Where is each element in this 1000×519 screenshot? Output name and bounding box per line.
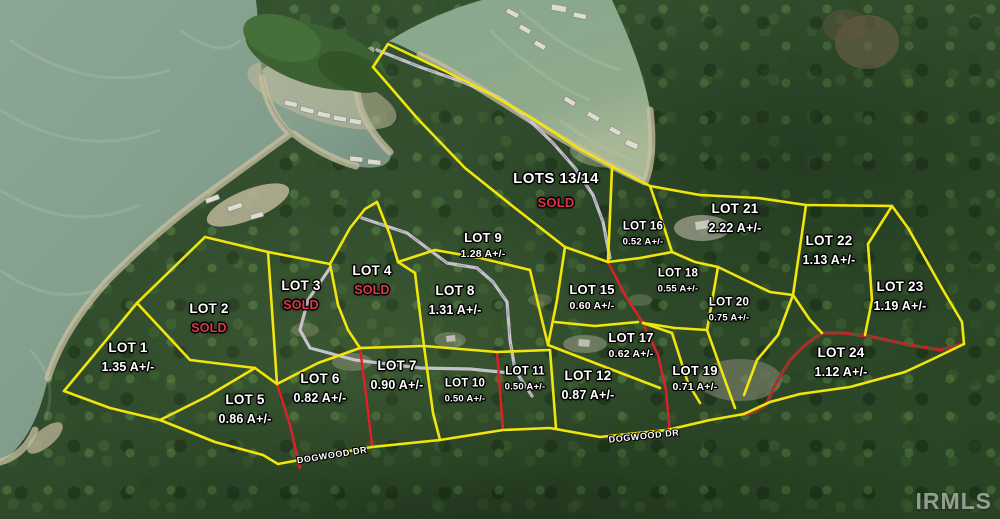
road-name-label: DOGWOOD DR <box>296 445 368 466</box>
plat-map: LOT 11.35 A+/-LOT 2SOLDLOT 3SOLDLOT 4SOL… <box>0 0 1000 519</box>
mls-watermark: IRMLS <box>915 488 992 515</box>
road-labels: DOGWOOD DRDOGWOOD DR <box>0 0 1000 519</box>
road-name-label: DOGWOOD DR <box>608 427 680 444</box>
